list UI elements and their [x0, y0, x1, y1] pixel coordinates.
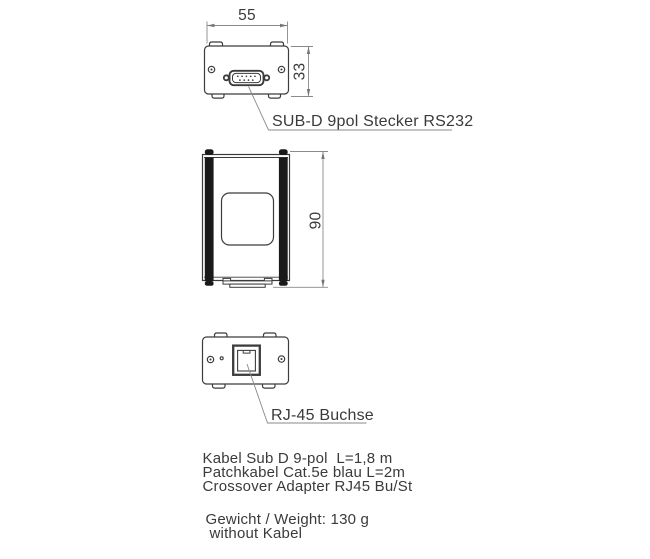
front-view [203, 149, 290, 287]
arrowhead [321, 152, 324, 160]
dimension-width-value: 55 [204, 7, 290, 24]
arrowhead [280, 24, 288, 27]
weight-note-line: without Kabel [210, 527, 303, 541]
dimension-height-value: 33 [292, 32, 309, 112]
bottom-view [203, 333, 289, 388]
rj45-callout-label: RJ-45 Buchse [271, 407, 374, 425]
note-crossover-adapter: Crossover Adapter RJ45 Bu/St [203, 480, 413, 494]
dimension-55-lines [207, 22, 288, 44]
arrowhead [321, 280, 324, 288]
dimension-depth-value: 90 [307, 180, 324, 260]
technical-drawing: 55 33 90 SUB-D 9pol Stecker RS232 RJ-45 … [0, 0, 650, 559]
housing-outline [203, 155, 290, 281]
arrowhead [207, 24, 215, 27]
subd-callout-label: SUB-D 9pol Stecker RS232 [272, 113, 473, 131]
housing-outline [203, 337, 289, 384]
top-view [205, 42, 289, 98]
